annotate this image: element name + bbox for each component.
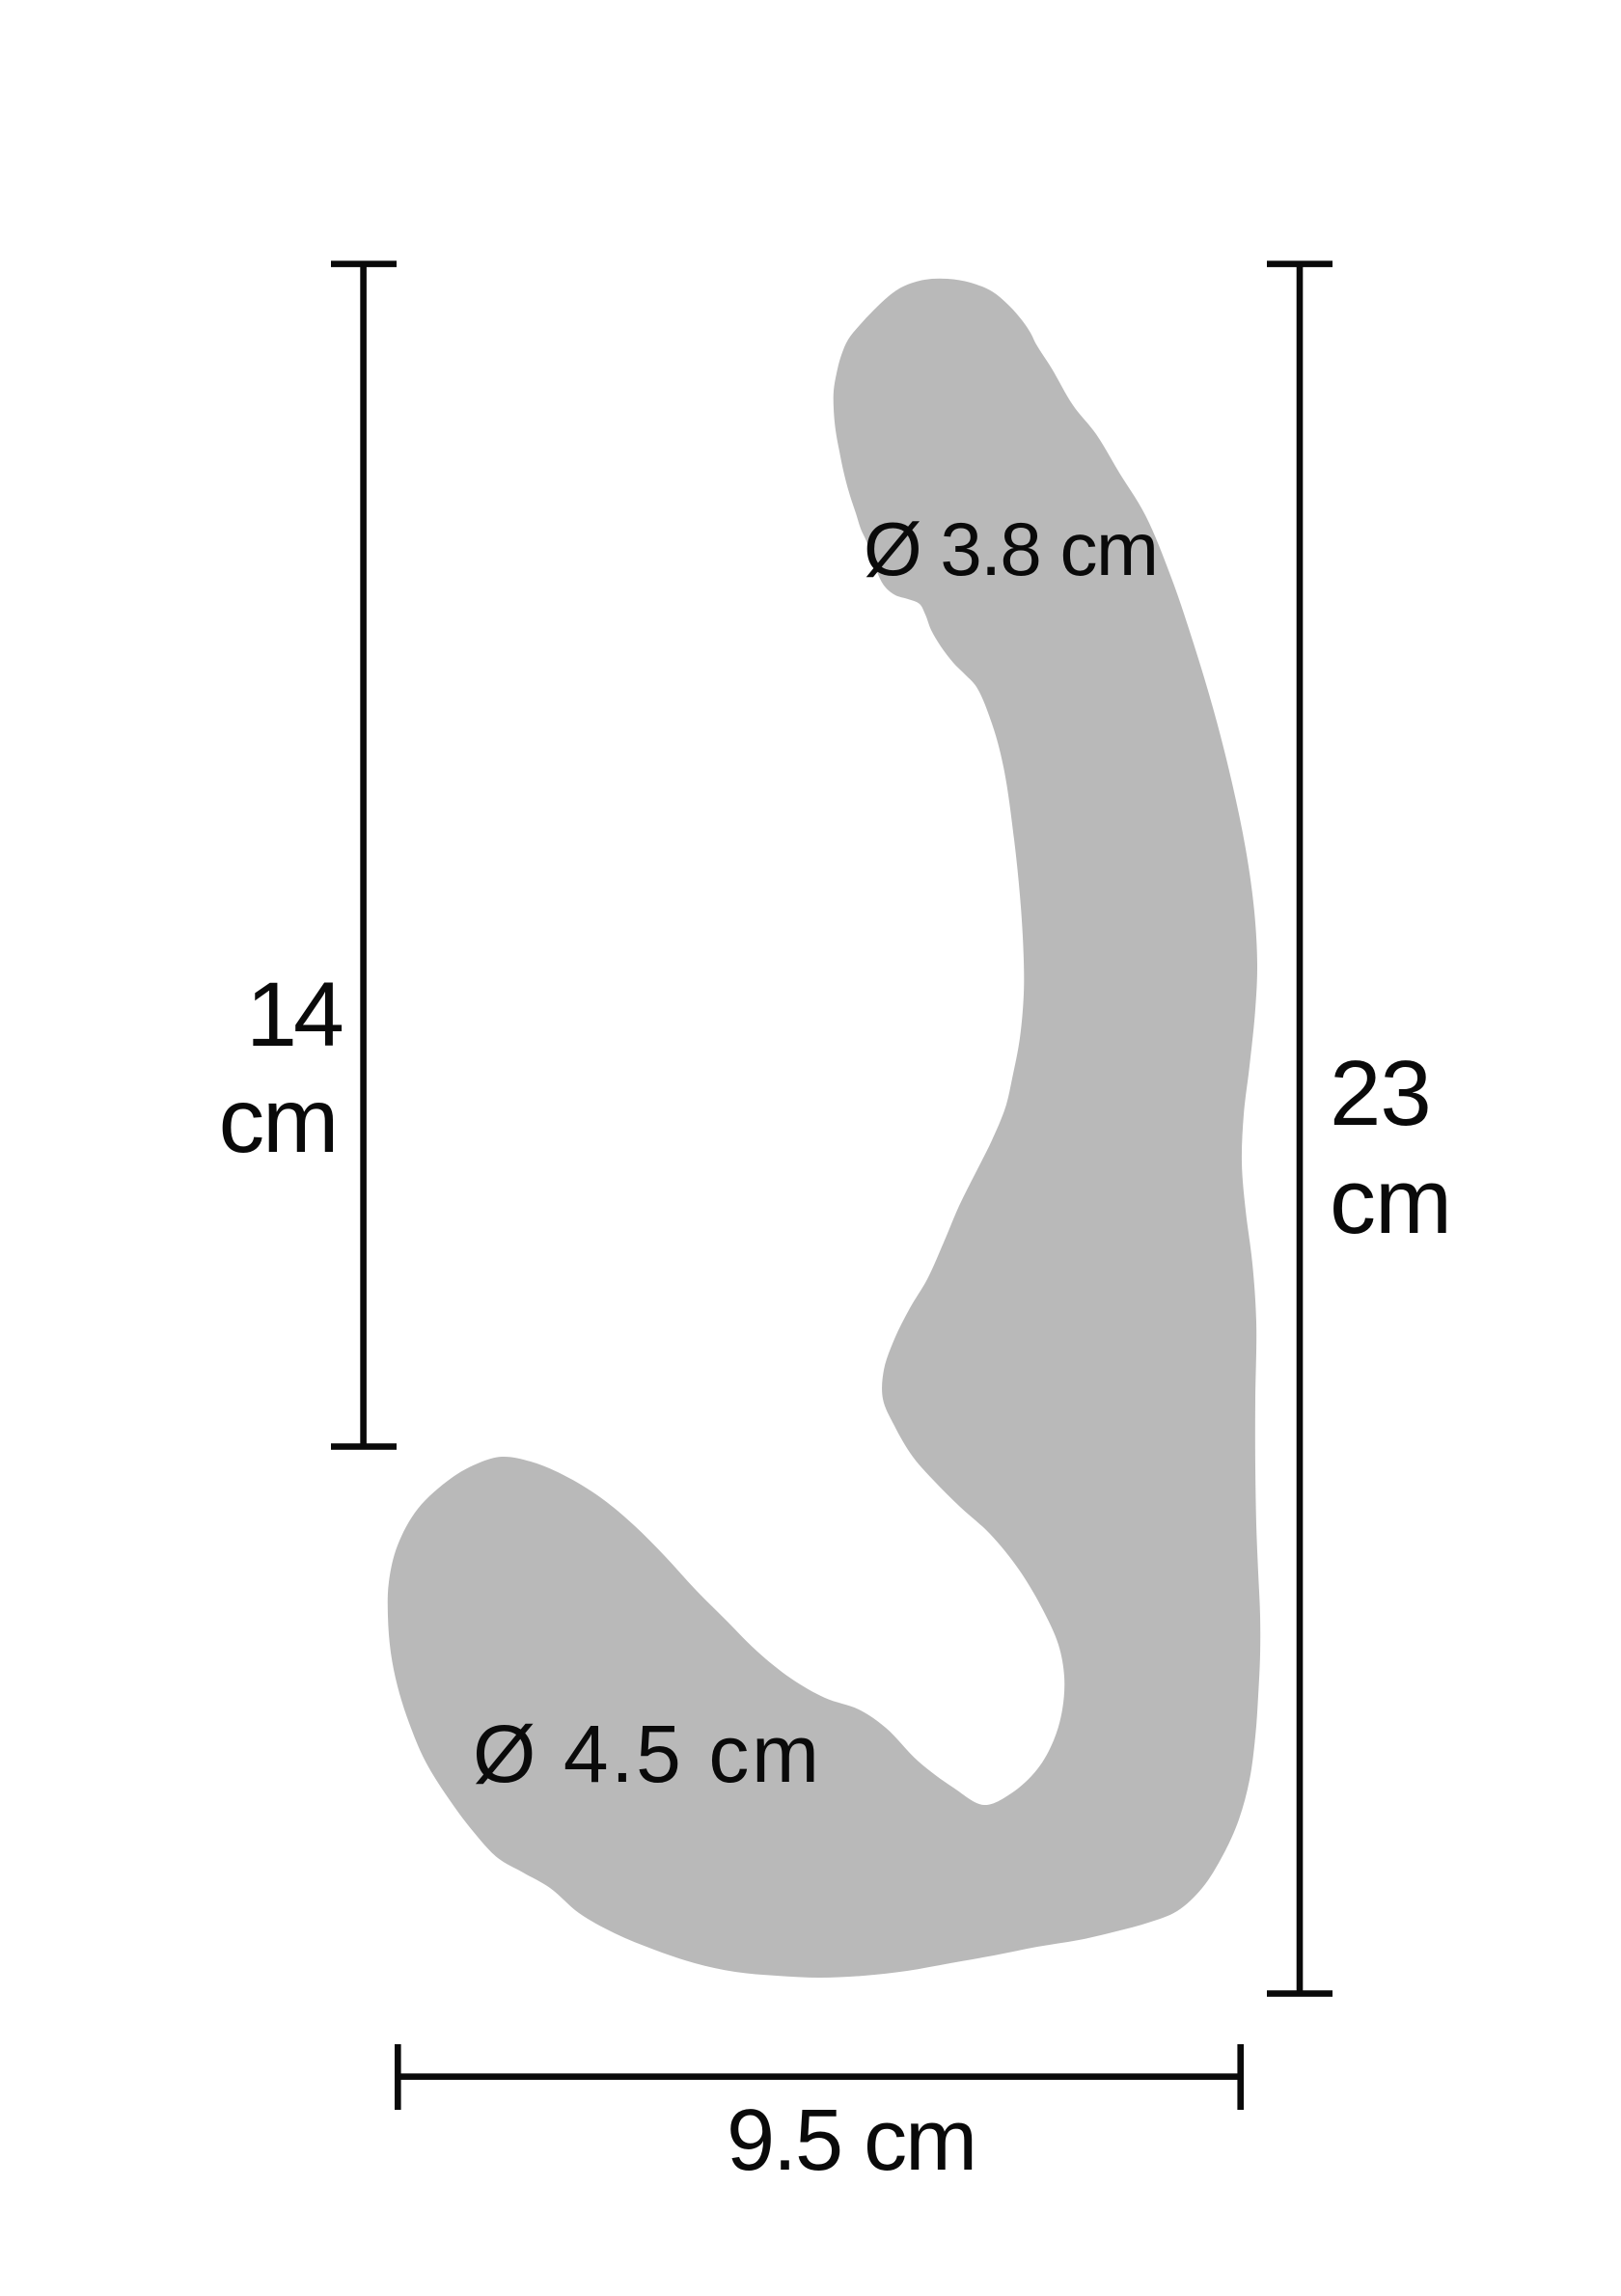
- svg-text:14: 14: [246, 964, 343, 1066]
- svg-text:Ø 3.8 cm: Ø 3.8 cm: [864, 506, 1157, 591]
- svg-text:cm: cm: [219, 1070, 338, 1172]
- svg-text:Ø 4.5 cm: Ø 4.5 cm: [473, 1708, 822, 1799]
- svg-text:23: 23: [1330, 1042, 1431, 1145]
- svg-text:cm: cm: [1330, 1150, 1451, 1253]
- svg-text:9.5 cm: 9.5 cm: [727, 2092, 975, 2189]
